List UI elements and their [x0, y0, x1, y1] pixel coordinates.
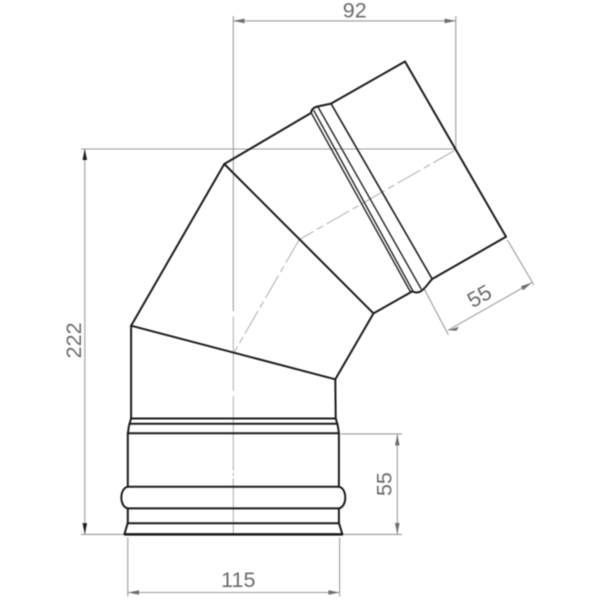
svg-text:222: 222 — [62, 322, 86, 358]
svg-text:55: 55 — [372, 472, 396, 496]
svg-text:115: 115 — [221, 568, 255, 592]
svg-text:92: 92 — [343, 0, 367, 23]
